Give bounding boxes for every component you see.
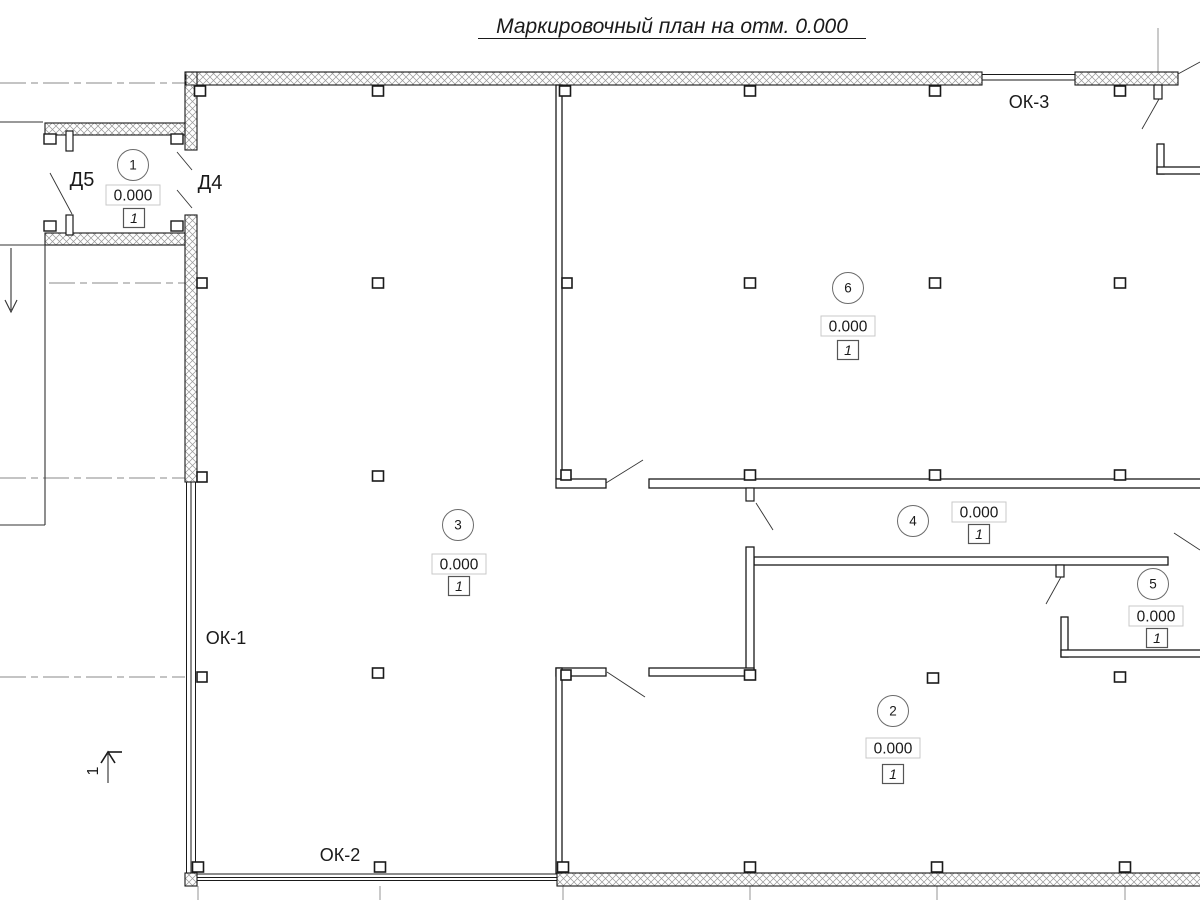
door-jamb-topright	[1154, 85, 1162, 99]
window-ok3	[982, 75, 1075, 81]
room-number: 4	[909, 514, 917, 529]
room-number: 6	[844, 281, 852, 296]
room-marker-2: 20.0001	[866, 696, 920, 784]
door-label: Д5	[70, 169, 95, 191]
door-swing-bottom-center	[607, 672, 645, 697]
room-elevation: 0.000	[960, 505, 999, 522]
wall-center-vertical	[746, 547, 754, 673]
wall-room2-north	[649, 668, 754, 676]
wall-bottom-right-span	[557, 873, 1200, 886]
leader-room5-edge	[1174, 533, 1200, 550]
room-floor-type: 1	[975, 526, 983, 542]
window-label: ОК-3	[1009, 92, 1050, 112]
window-label: ОК-2	[320, 845, 361, 865]
room-elevation: 0.000	[874, 741, 913, 758]
leader-d4-upper	[177, 152, 192, 170]
grid-stubs	[198, 28, 1158, 900]
drawing-sheet: Маркировочный план на отм. 0.000	[0, 0, 1200, 900]
door-jamb-center	[746, 488, 754, 501]
room-marker-4: 40.0001	[898, 502, 1007, 544]
door-leaf-d5-top	[66, 131, 73, 151]
wall-top-right-span	[1075, 72, 1178, 85]
wall-room5-south	[1061, 650, 1200, 657]
leader-lines	[50, 62, 1200, 697]
wall-room5-north	[754, 557, 1168, 565]
leader-topright-corner	[1178, 62, 1200, 74]
window-ok2	[197, 874, 557, 881]
room-marker-5: 50.0001	[1129, 569, 1183, 648]
room-elevation: 0.000	[1137, 609, 1176, 626]
room-elevation: 0.000	[114, 188, 153, 205]
wall-top-left-span	[186, 72, 982, 85]
room-floor-type: 1	[1153, 630, 1161, 646]
section-mark: 1	[85, 752, 122, 783]
room-elevation: 0.000	[440, 557, 479, 574]
page-title: Маркировочный план на отм. 0.000	[496, 15, 848, 38]
room-number: 2	[889, 704, 897, 719]
leader-room5-jamb	[1046, 577, 1061, 604]
door-jamb-room5	[1056, 565, 1064, 577]
wall-left-lower	[185, 215, 197, 482]
room-number: 1	[129, 158, 137, 173]
windows	[187, 75, 1076, 881]
wall-end-posts	[44, 134, 183, 231]
section-mark-number: 1	[85, 766, 102, 775]
door-leaf-d5-bottom	[66, 215, 73, 235]
floor-plan-svg: Маркировочный план на отм. 0.000	[0, 0, 1200, 900]
door-swing-top-center	[606, 460, 643, 483]
wall-left-upper	[185, 72, 197, 150]
wall-hall-divider-upper	[556, 85, 562, 479]
room-floor-type: 1	[455, 578, 463, 594]
room-number: 3	[454, 518, 462, 533]
room-elevation: 0.000	[829, 319, 868, 336]
room-marker-1: 10.0001	[106, 150, 160, 228]
room-marker-6: 60.0001	[821, 273, 875, 360]
room-floor-type: 1	[130, 210, 138, 226]
room-floor-type: 1	[844, 342, 852, 358]
room-floor-type: 1	[889, 766, 897, 782]
room-marker-3: 30.0001	[432, 510, 486, 596]
leader-topright-jamb	[1142, 99, 1159, 129]
window-ok1	[187, 482, 196, 873]
room-markers: 10.000120.000130.000140.000150.000160.00…	[106, 150, 1183, 784]
entrance-arrow	[5, 248, 17, 312]
leader-center-jamb	[756, 503, 773, 530]
wall-hall-divider-lower	[556, 668, 562, 873]
wall-topright-horizontal	[1157, 167, 1200, 174]
window-label: ОК-1	[206, 628, 247, 648]
leader-d4-lower	[177, 190, 192, 208]
door-label: Д4	[198, 172, 223, 194]
wall-bottom-left-corner	[185, 873, 197, 886]
room-number: 5	[1149, 577, 1157, 592]
site-lines	[0, 122, 45, 525]
